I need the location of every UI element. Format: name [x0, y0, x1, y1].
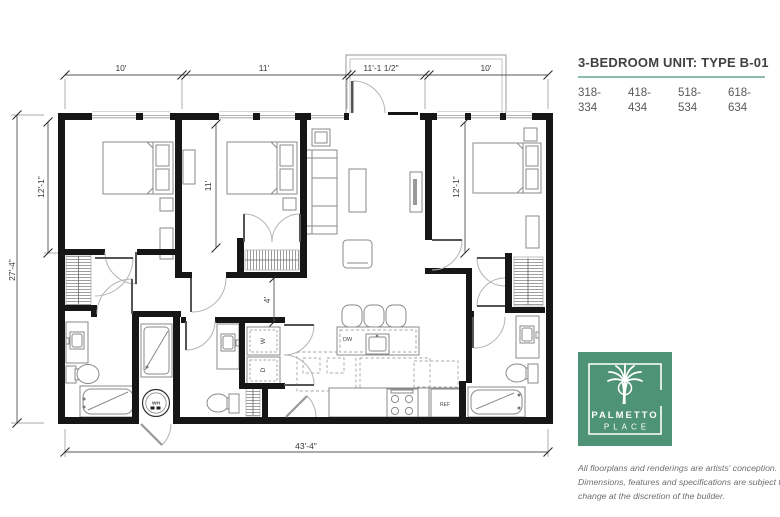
floorplan-drawing: 10' 11' 11'-1 1/2" 10' 27'-4" 12'-1" 11'… — [0, 0, 570, 517]
range — [387, 389, 418, 417]
nightstand — [283, 198, 296, 210]
master-toilet — [506, 364, 538, 383]
armchair — [343, 240, 372, 268]
disclaimer: All floorplans and renderings are artist… — [578, 461, 780, 503]
shower — [141, 324, 172, 377]
palmetto-place-logo: PALMETTO PLACE — [578, 352, 672, 446]
dresser — [183, 150, 195, 184]
washer-label: W — [260, 337, 267, 344]
bath1-toilet — [66, 365, 99, 384]
bed-3 — [473, 143, 541, 193]
unit-range-to: 634 — [728, 101, 778, 116]
dim-side-bed1: 12'-1" — [36, 176, 46, 198]
title-divider — [578, 76, 765, 78]
bath2-vanity — [217, 324, 239, 369]
bath2-toilet — [207, 394, 239, 413]
master-tub — [468, 387, 525, 417]
unit-range-from: 318- — [578, 86, 628, 101]
floorplan-sheet: 10' 11' 11'-1 1/2" 10' 27'-4" 12'-1" 11'… — [0, 0, 780, 517]
unit-range-to: 534 — [678, 101, 728, 116]
logo-name: PALMETTO — [591, 410, 658, 421]
disclaimer-line: change at the discretion of the builder. — [578, 489, 780, 503]
unit-range: 518- 534 — [678, 86, 728, 116]
dresser — [526, 216, 539, 248]
end-table — [312, 129, 330, 146]
tv-console — [410, 172, 422, 212]
dishwasher-label: DW — [343, 337, 353, 343]
washer-dryer — [247, 327, 280, 384]
unit-range-from: 518- — [678, 86, 728, 101]
nightstand — [524, 128, 537, 141]
dim-side-total: 27'-4" — [7, 259, 17, 281]
unit-range-from: 418- — [628, 86, 678, 101]
unit-range: 318- 334 — [578, 86, 628, 116]
dim-top-bed3: 10' — [480, 63, 491, 73]
bath1-tub — [80, 386, 136, 417]
bed-1 — [103, 142, 173, 194]
refrigerator-label: REF — [440, 402, 450, 408]
dim-top-bed1: 10' — [115, 63, 126, 73]
coffee-table — [349, 169, 366, 212]
page-title: 3-BEDROOM UNIT: TYPE B-01 — [578, 55, 770, 70]
unit-range-to: 334 — [578, 101, 628, 116]
dryer-label: D — [260, 367, 267, 372]
disclaimer-line: All floorplans and renderings are artist… — [578, 461, 780, 475]
bed-2 — [227, 142, 297, 194]
dim-bed2-depth: 11' — [203, 180, 213, 191]
sofa — [306, 150, 337, 234]
disclaimer-line: Dimensions, features and specifications … — [578, 475, 780, 489]
bar-stool — [364, 305, 384, 327]
dim-bed3-depth: 12'-1" — [451, 176, 461, 198]
nightstand — [160, 198, 173, 211]
water-heater-label: WH — [152, 401, 161, 407]
bar-stool — [342, 305, 362, 327]
unit-number-list: 318- 334 418- 434 518- 534 618- 634 — [578, 86, 778, 116]
bath1-vanity — [66, 322, 88, 363]
dim-top-entry: 11'-1 1/2" — [363, 63, 398, 73]
unit-range-from: 618- — [728, 86, 778, 101]
bar-stool — [386, 305, 406, 327]
unit-range-to: 434 — [628, 101, 678, 116]
dim-bottom-total: 43'-4" — [295, 441, 317, 451]
logo-subname: PLACE — [604, 423, 650, 432]
master-vanity — [516, 316, 539, 358]
palm-tree-icon — [608, 364, 642, 404]
info-panel: 3-BEDROOM UNIT: TYPE B-01 318- 334 418- … — [578, 0, 778, 517]
dim-top-bed2: 11' — [259, 63, 270, 73]
unit-range: 418- 434 — [628, 86, 678, 116]
dim-hall-width: 4' — [262, 296, 272, 303]
unit-range: 618- 634 — [728, 86, 778, 116]
